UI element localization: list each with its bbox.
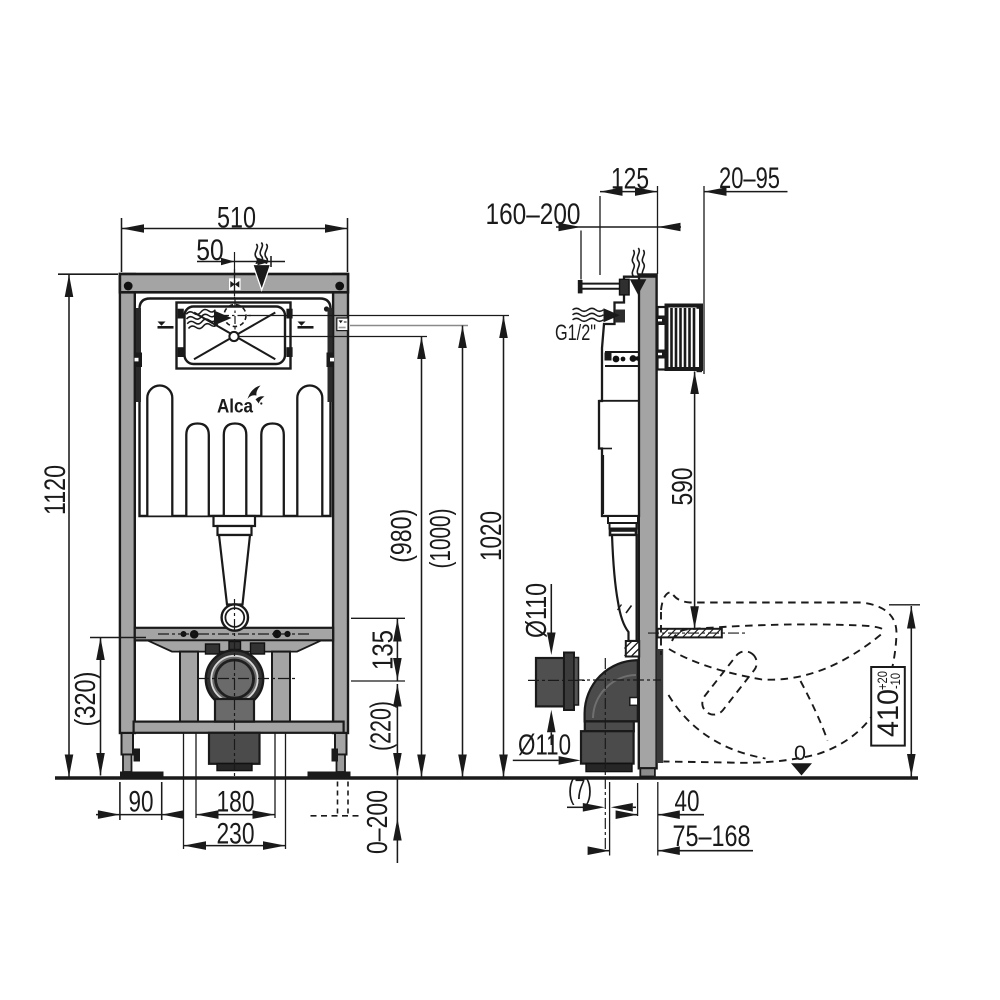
svg-text:Alca: Alca (217, 397, 253, 418)
svg-text:160–200: 160–200 (486, 198, 581, 231)
svg-text:75–168: 75–168 (673, 820, 751, 853)
svg-text:(1000): (1000) (425, 509, 457, 569)
svg-text:(7): (7) (568, 774, 592, 806)
svg-text:G1/2": G1/2" (555, 320, 596, 345)
svg-text:50: 50 (196, 234, 224, 267)
svg-text:0: 0 (794, 742, 806, 765)
svg-text:(320): (320) (70, 672, 102, 727)
svg-text:0–200: 0–200 (362, 790, 394, 854)
svg-text:1020: 1020 (475, 511, 508, 561)
svg-text:510: 510 (217, 202, 256, 235)
svg-text:(980): (980) (386, 509, 418, 563)
svg-text:180: 180 (217, 786, 255, 819)
svg-text:(220): (220) (366, 701, 398, 751)
svg-text:230: 230 (217, 818, 255, 851)
svg-text:Ø110: Ø110 (521, 583, 553, 638)
svg-text:40: 40 (675, 785, 700, 818)
svg-text:135: 135 (368, 630, 400, 670)
svg-text:125: 125 (611, 163, 649, 196)
svg-text:90: 90 (129, 786, 154, 819)
svg-text:20–95: 20–95 (719, 162, 780, 195)
svg-text:-10: -10 (888, 673, 903, 689)
svg-text:590: 590 (667, 468, 699, 506)
svg-text:Ø110: Ø110 (518, 730, 571, 762)
svg-text:1120: 1120 (39, 465, 72, 515)
svg-text:410: 410 (872, 689, 905, 737)
